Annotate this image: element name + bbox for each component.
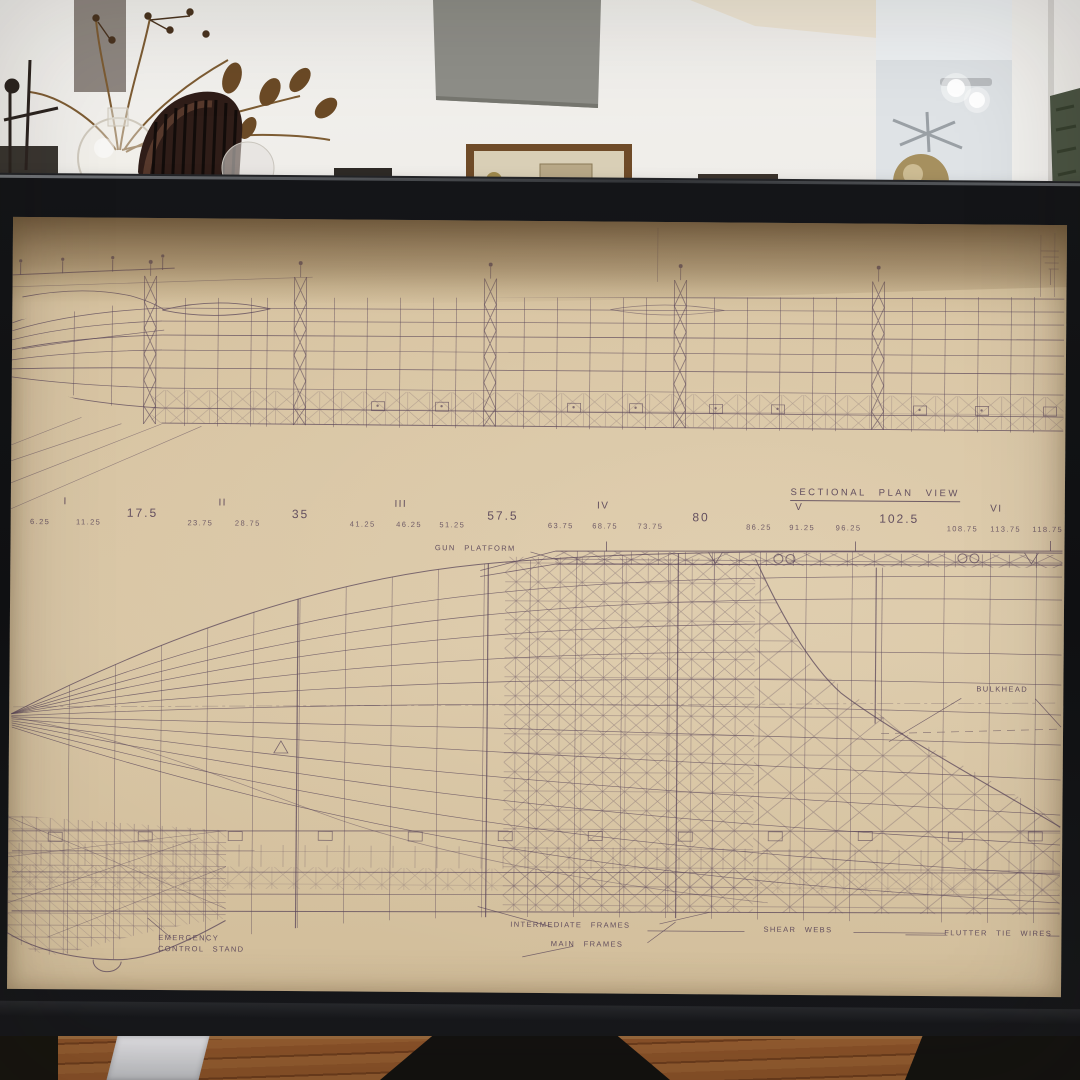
blueprint-paper: SECTIONAL PLAN VIEW IIIIIIIVVVI17.53557.… — [7, 217, 1067, 997]
station-major-57.5: 57.5 — [487, 509, 518, 523]
station-roman-I: I — [63, 497, 67, 508]
station-minor-63.75: 63.75 — [548, 521, 574, 530]
station-minor-46.25: 46.25 — [396, 519, 422, 528]
annotation-gun-platform: GUN PLATFORM — [435, 543, 516, 553]
station-minor-68.75: 68.75 — [592, 521, 618, 530]
station-minor-11.25: 11.25 — [76, 517, 101, 526]
annotation-control-stand: CONTROL STAND — [158, 944, 245, 954]
easel-leg-right — [905, 1036, 1080, 1080]
station-minor-86.25: 86.25 — [746, 522, 772, 531]
station-minor-23.75: 23.75 — [187, 518, 213, 527]
station-minor-96.25: 96.25 — [836, 523, 862, 532]
station-roman-II: II — [218, 498, 226, 509]
annotation-shear-webs: SHEAR WEBS — [763, 924, 832, 934]
soffit-panel — [433, 0, 601, 108]
wood-floor — [0, 1036, 1080, 1080]
station-roman-V: V — [795, 502, 803, 513]
station-minor-51.25: 51.25 — [439, 520, 465, 529]
station-minor-91.25: 91.25 — [789, 522, 815, 531]
annotation-bulkhead: BULKHEAD — [976, 685, 1028, 694]
station-minor-6.25: 6.25 — [30, 517, 50, 526]
picture-frame: SECTIONAL PLAN VIEW IIIIIIIVVVI17.53557.… — [0, 173, 1080, 1046]
station-minor-41.25: 41.25 — [350, 519, 376, 528]
annotation-flutter-tie-wires: FLUTTER TIE WIRES — [944, 928, 1052, 938]
sectional-plan-view-title: SECTIONAL PLAN VIEW — [790, 487, 959, 502]
floor-shadow-left — [0, 1036, 58, 1080]
station-roman-III: III — [394, 499, 407, 510]
station-major-102.5: 102.5 — [879, 512, 919, 526]
annotation-intermediate-frames: INTERMEDIATE FRAMES — [510, 920, 630, 930]
station-major-80: 80 — [692, 510, 709, 524]
station-roman-VI: VI — [990, 504, 1002, 515]
station-major-35: 35 — [292, 507, 309, 521]
station-minor-118.75: 118.75 — [1032, 524, 1063, 533]
station-minor-108.75: 108.75 — [947, 524, 978, 533]
station-roman-IV: IV — [597, 501, 609, 512]
reflective-strip — [107, 1036, 210, 1080]
annotation-emergency: EMERGENCY — [158, 933, 219, 942]
gallery-photo: SECTIONAL PLAN VIEW IIIIIIIVVVI17.53557.… — [0, 0, 1080, 1080]
annotation-main-frames: MAIN FRAMES — [551, 939, 624, 949]
blueprint-labels: SECTIONAL PLAN VIEW IIIIIIIVVVI17.53557.… — [7, 217, 1067, 997]
station-minor-113.75: 113.75 — [990, 524, 1021, 533]
station-major-17.5: 17.5 — [127, 506, 158, 520]
station-minor-73.75: 73.75 — [637, 521, 663, 530]
station-minor-28.75: 28.75 — [235, 518, 261, 527]
